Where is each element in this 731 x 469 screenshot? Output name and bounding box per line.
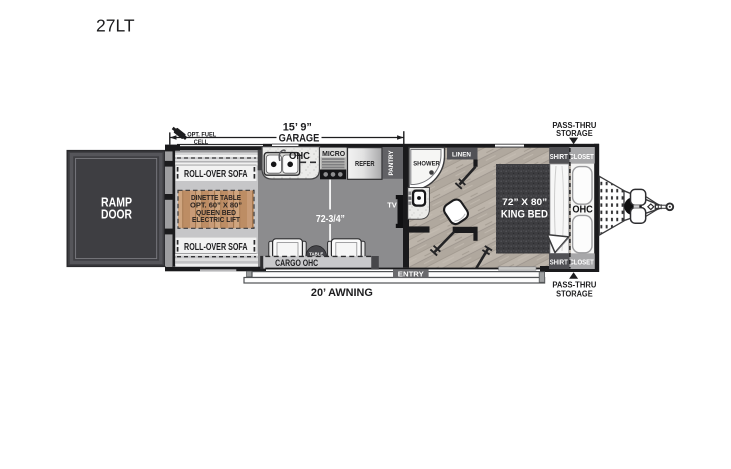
svg-text:72” X 80”: 72” X 80” bbox=[502, 197, 547, 208]
svg-text:CARGO OHC: CARGO OHC bbox=[275, 258, 318, 268]
svg-text:OPT. FUEL: OPT. FUEL bbox=[187, 131, 216, 138]
svg-text:GARAGE: GARAGE bbox=[279, 132, 320, 144]
svg-text:DOOR: DOOR bbox=[101, 207, 132, 222]
svg-text:SHOWER: SHOWER bbox=[413, 161, 440, 168]
svg-text:CELL: CELL bbox=[194, 139, 209, 146]
svg-text:PANTRY: PANTRY bbox=[388, 150, 395, 175]
svg-text:OHC: OHC bbox=[572, 203, 593, 215]
svg-text:STORAGE: STORAGE bbox=[556, 128, 593, 138]
svg-text:OHC: OHC bbox=[289, 151, 310, 162]
svg-text:DINETTE TABLE: DINETTE TABLE bbox=[191, 195, 241, 202]
svg-text:SHIRT CLOSET: SHIRT CLOSET bbox=[550, 154, 595, 161]
svg-text:ELECTRIC LIFT: ELECTRIC LIFT bbox=[192, 217, 241, 224]
svg-text:SHIRT CLOSET: SHIRT CLOSET bbox=[550, 259, 595, 266]
svg-text:72-3/4”: 72-3/4” bbox=[316, 214, 345, 225]
svg-text:QUEEN BED: QUEEN BED bbox=[196, 210, 236, 217]
svg-text:ROLL-OVER SOFA: ROLL-OVER SOFA bbox=[184, 242, 248, 253]
svg-text:REFER: REFER bbox=[355, 161, 375, 168]
svg-text:MICRO: MICRO bbox=[322, 149, 345, 158]
svg-text:KING BED: KING BED bbox=[501, 208, 548, 220]
svg-text:OPT. 60” X 80”: OPT. 60” X 80” bbox=[190, 203, 242, 210]
svg-text:TV: TV bbox=[387, 201, 397, 210]
svg-text:ROLL-OVER SOFA: ROLL-OVER SOFA bbox=[184, 169, 248, 180]
svg-text:STORAGE: STORAGE bbox=[556, 289, 593, 299]
svg-text:LINEN: LINEN bbox=[452, 152, 471, 158]
svg-text:20’ AWNING: 20’ AWNING bbox=[311, 287, 373, 299]
svg-text:27LT: 27LT bbox=[96, 16, 135, 36]
svg-text:ENTRY: ENTRY bbox=[398, 269, 424, 278]
